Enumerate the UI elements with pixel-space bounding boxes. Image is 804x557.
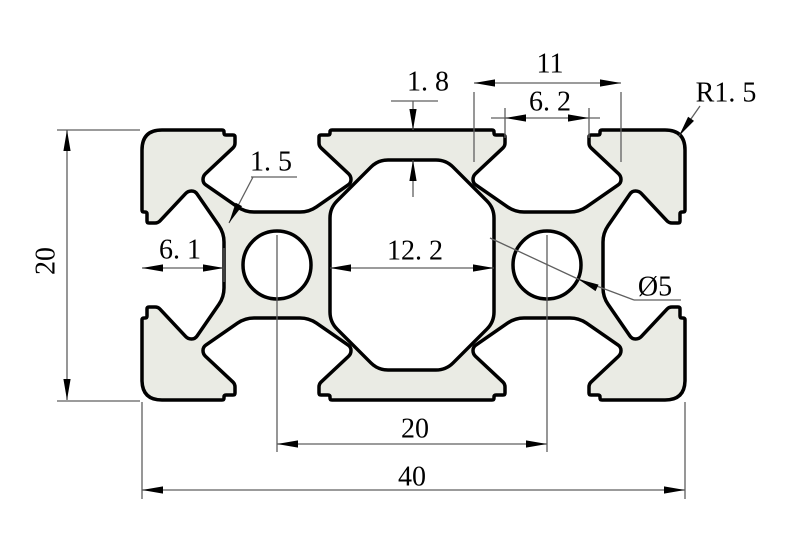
- dim-arrowhead: [409, 109, 416, 130]
- dim-arrowhead: [664, 486, 685, 493]
- dim-arrowhead: [474, 79, 495, 86]
- dim-arrowhead: [277, 440, 298, 447]
- dim-arrowhead: [63, 130, 70, 151]
- dim-hole-diameter-label: Ø5: [638, 272, 672, 303]
- dim-arrowhead: [526, 440, 547, 447]
- dim-arrowhead: [142, 486, 163, 493]
- dim-slot-opening-width-label: 6. 2: [529, 87, 571, 118]
- dim-arrowhead: [568, 114, 589, 121]
- dim-wall-thickness-label: 1. 5: [250, 147, 292, 178]
- dim-overall-height-label: 20: [31, 247, 62, 275]
- dim-center-cavity-width-label: 12. 2: [387, 236, 443, 267]
- dim-arrowhead: [203, 264, 224, 271]
- dim-arrowhead: [63, 379, 70, 400]
- dim-overall-width-label: 40: [398, 462, 426, 493]
- dim-arrowhead: [600, 79, 621, 86]
- dim-corner-radius-label: R1. 5: [696, 78, 757, 109]
- dim-top-wall-thickness-label: 1. 8: [407, 67, 449, 98]
- dim-edge-to-slot-label: 6. 1: [159, 235, 201, 266]
- technical-drawing-canvas: 20 40 20 12. 2 6. 1 1. 8 11 6. 2 R1. 5 1…: [0, 0, 804, 557]
- dim-slot-inner-width-label: 11: [537, 49, 564, 80]
- dim-arrowhead: [679, 117, 694, 136]
- dim-arrowhead: [505, 114, 526, 121]
- extrusion-profile-drawing: 20 40 20 12. 2 6. 1 1. 8 11 6. 2 R1. 5 1…: [0, 0, 804, 557]
- dim-hole-spacing-label: 20: [401, 414, 429, 445]
